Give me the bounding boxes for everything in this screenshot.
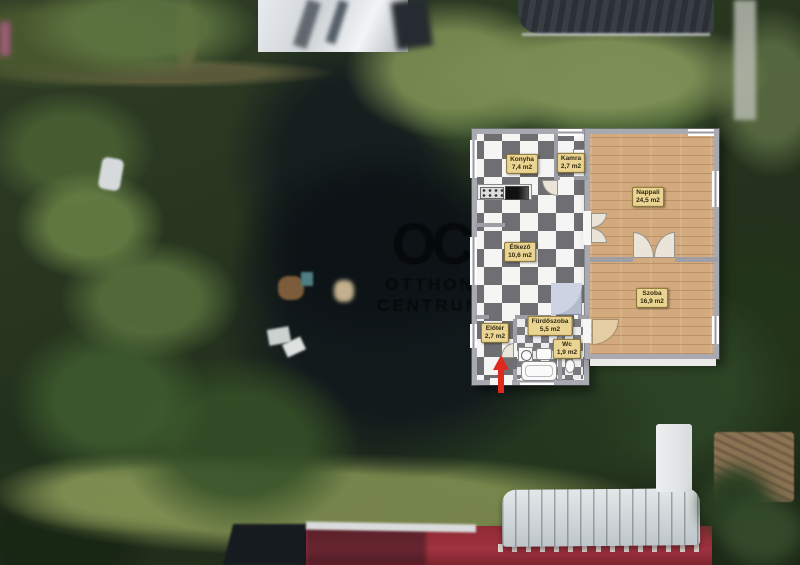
teal-object xyxy=(301,272,313,286)
entrance-arrow-icon xyxy=(493,355,509,370)
window-konyha-left xyxy=(470,140,477,178)
room-name: Szoba xyxy=(640,290,664,298)
window-nappali-right xyxy=(712,171,719,207)
wall-nappali-szoba xyxy=(675,257,718,262)
entrance-arrow-shaft xyxy=(498,369,504,393)
room-name: Kamra xyxy=(561,155,581,163)
gutter-line xyxy=(522,33,710,36)
window-eloter-left xyxy=(470,324,477,348)
floor-plan-overlay: Konyha 7,4 m2 Kamra 2,7 m2 Nappali 24,5 … xyxy=(470,127,724,389)
room-name: Konyha xyxy=(510,156,534,164)
room-name: Előtér xyxy=(485,325,505,333)
window-etkezo-left xyxy=(470,237,477,285)
room-label-nappali: Nappali 24,5 m2 xyxy=(632,187,664,207)
magenta-smudge xyxy=(0,22,10,56)
room-label-furdoszoba: Fürdőszoba 5,5 m2 xyxy=(528,316,573,336)
satellite-photo-background: OC OTTHON CENTRUM xyxy=(0,0,800,565)
wall-kamra-bottom xyxy=(574,176,588,180)
room-area: 5,5 m2 xyxy=(532,326,569,334)
white-car xyxy=(97,156,124,191)
room-name: Wc xyxy=(557,341,577,349)
wall-nappali-szoba xyxy=(590,257,633,262)
stove-burners-icon xyxy=(480,187,504,199)
red-roof-shadow-left xyxy=(306,526,426,565)
opening-etkezo-nappali xyxy=(583,211,591,245)
window-kamra-top xyxy=(558,129,582,136)
room-area: 2,7 m2 xyxy=(485,333,505,341)
room-name: Étkező xyxy=(508,244,532,252)
dark-roof-bottom xyxy=(223,524,319,565)
wall-kitchen-stub xyxy=(475,223,505,227)
room-label-konyha: Konyha 7,4 m2 xyxy=(506,154,538,174)
room-label-eloter: Előtér 2,7 m2 xyxy=(481,323,509,343)
washing-machine-drum xyxy=(521,350,532,361)
tree-blob-bottom-right xyxy=(722,498,800,564)
kitchen-counter xyxy=(477,184,532,200)
room-area: 10,6 m2 xyxy=(508,252,532,260)
bathroom-sink xyxy=(536,348,552,360)
room-area: 1,9 m2 xyxy=(557,349,577,357)
toilet-bowl-icon xyxy=(565,359,575,373)
room-area: 16,9 m2 xyxy=(640,298,664,306)
window-szoba-right xyxy=(712,316,719,344)
room-label-etkezo: Étkező 10,6 m2 xyxy=(504,242,536,262)
terrace-strip xyxy=(590,359,716,366)
window-nappali-top xyxy=(688,129,714,136)
greenhouse xyxy=(502,488,700,547)
room-label-szoba: Szoba 16,9 m2 xyxy=(636,288,668,308)
wall-hall-top xyxy=(475,315,489,319)
white-shed xyxy=(656,424,692,492)
room-name: Nappali xyxy=(636,189,660,197)
room-area: 7,4 m2 xyxy=(510,164,534,172)
room-name: Fürdőszoba xyxy=(532,318,569,326)
dark-roof-building-top-right xyxy=(518,0,714,34)
opening-hall-szoba xyxy=(583,319,591,343)
bathtub-icon xyxy=(521,361,557,381)
room-label-kamra: Kamra 2,7 m2 xyxy=(557,153,585,173)
room-area: 24,5 m2 xyxy=(636,197,660,205)
oven-icon xyxy=(505,186,529,200)
room-area: 2,7 m2 xyxy=(561,163,581,171)
dark-tree-wedge xyxy=(391,0,433,50)
beige-structure xyxy=(334,280,354,302)
driveway-strip xyxy=(734,0,756,120)
bathtub-inner xyxy=(525,365,553,377)
washing-machine-icon xyxy=(518,347,533,362)
room-label-wc: Wc 1,9 m2 xyxy=(553,339,581,359)
